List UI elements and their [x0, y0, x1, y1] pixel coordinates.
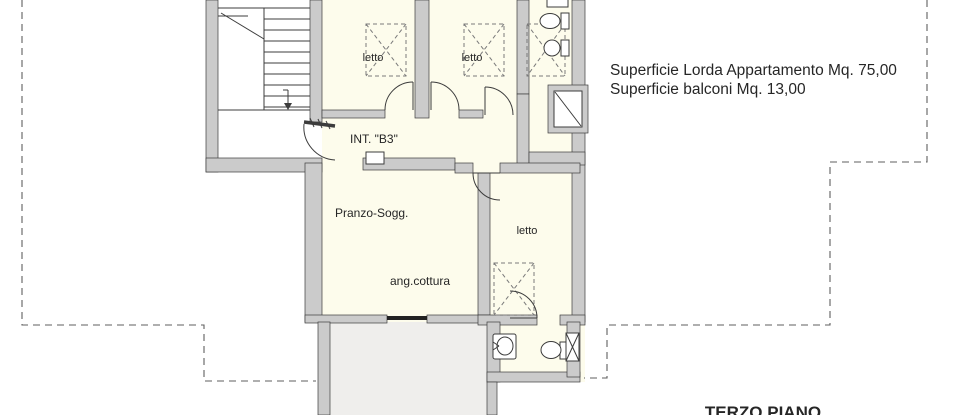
- room-label-bedroom3: letto: [517, 225, 538, 237]
- flue-niche: [366, 152, 384, 164]
- window-icon: [566, 333, 579, 361]
- floor-plan-page: letto letto letto Pranzo-Sogg. ang.cottu…: [0, 0, 960, 415]
- room-label-living: Pranzo-Sogg.: [335, 206, 408, 220]
- unit-label: INT. "B3": [350, 132, 398, 146]
- toilet-icon: [541, 342, 568, 360]
- sink-icon: [493, 334, 516, 359]
- toilet-icon: [540, 13, 569, 29]
- bidet-icon: [544, 40, 569, 56]
- balcony-door-threshold: [387, 316, 427, 320]
- annotation-balcony-area: Superficie balconi Mq. 13,00: [610, 81, 806, 98]
- balcony: [330, 322, 487, 415]
- room-label-bedroom1: letto: [363, 52, 384, 64]
- staircase-icon: [218, 8, 310, 110]
- annotation-gross-area: Superficie Lorda Appartamento Mq. 75,00: [610, 62, 897, 79]
- room-label-kitchen: ang.cottura: [390, 274, 450, 288]
- elevator-icon: [548, 85, 588, 133]
- floor-plan: letto letto letto Pranzo-Sogg. ang.cottu…: [0, 0, 960, 415]
- sink-icon: [547, 0, 568, 7]
- floor-title: TERZO PIANO: [705, 403, 821, 415]
- room-label-bedroom2: letto: [462, 52, 483, 64]
